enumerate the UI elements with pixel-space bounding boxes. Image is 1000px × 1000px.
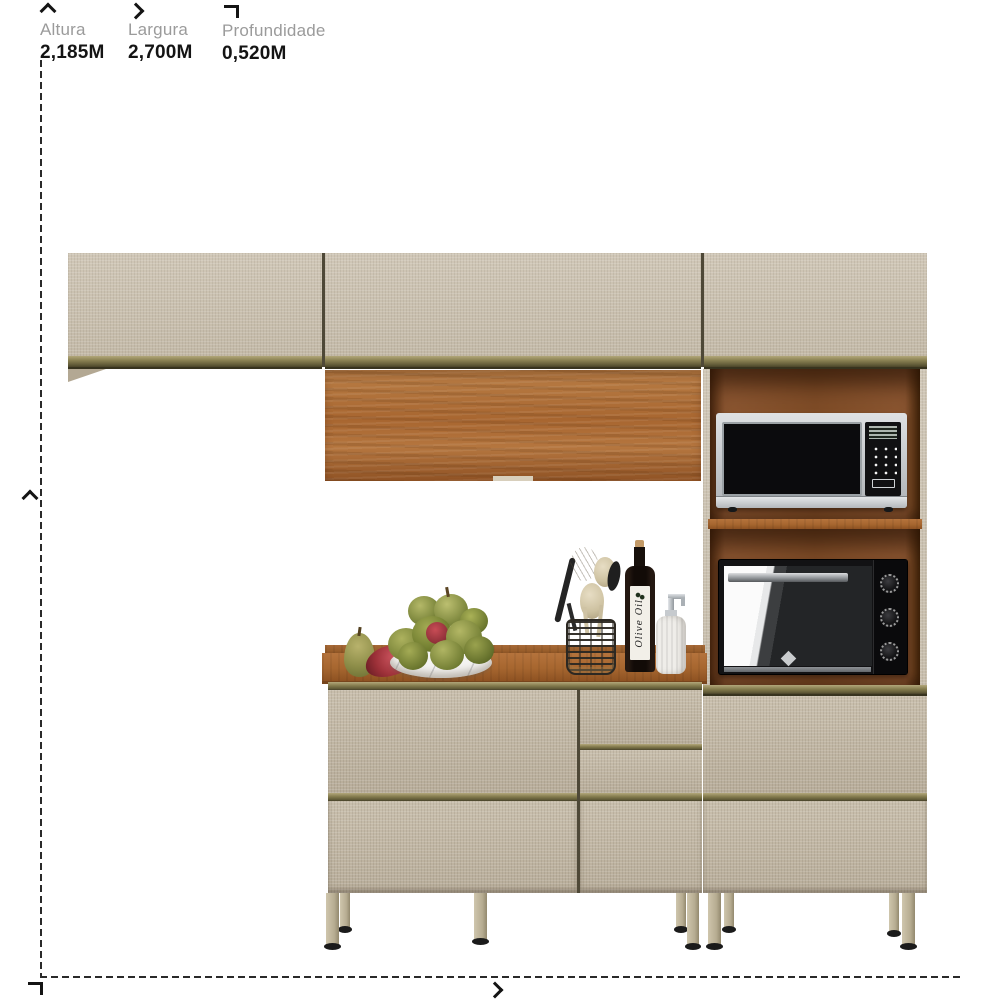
champagne-trim [325,356,701,369]
dimension-label: Largura [128,21,193,39]
microwave-niche [710,369,920,519]
champagne-trim [704,356,927,369]
niche-shelf [708,519,922,529]
microwave-foot [728,507,737,512]
leg-foot [685,943,701,950]
pear [464,636,494,664]
oven-handle [728,573,848,582]
dimension-value: 2,185M [40,42,105,64]
cabinet-leg [724,893,734,929]
microwave-display [869,426,897,439]
tall-cabinet-top-door [704,253,927,369]
cabinet-leg [474,893,487,941]
leg-foot [324,943,341,950]
wood-flip-door [325,370,701,481]
counter-left-lower-front [328,801,577,893]
pear [430,640,464,670]
bottle-label: Olive Oil [630,586,650,660]
width-arrow-icon [487,982,504,999]
cabinet-leg [340,893,350,929]
dispenser-body [656,616,686,674]
door-handle-notch [493,476,533,481]
tall-cabinet-upper-front [703,696,927,793]
depth-corner-icon [224,5,239,18]
champagne-trim [328,793,702,801]
oven-knob [880,608,899,627]
leg-foot [338,926,352,933]
utensil-set [558,545,624,675]
tall-cabinet-lower-front [703,801,927,893]
champagne-trim [328,682,702,690]
oven-knob [880,574,899,593]
height-guide-line [40,60,42,977]
cabinet-leg [889,893,899,933]
champagne-trim [703,685,927,696]
microwave-keypad [869,443,897,475]
leg-foot [706,943,723,950]
toaster-oven [718,559,908,675]
depth-corner-icon [28,982,43,995]
counter-small-drawer-top [580,690,702,744]
microwave [716,413,907,508]
chevron-up-icon [40,3,57,20]
champagne-trim [68,356,322,369]
microwave-base [716,496,907,508]
counter-small-drawer-bottom [580,750,702,793]
microwave-foot [884,507,893,512]
cabinet-leg [708,893,721,946]
leg-foot [674,926,688,933]
oven-niche [710,529,920,685]
width-guide-line [40,976,960,978]
product-image-canvas: Altura 2,185M Largura 2,700M Profundidad… [0,0,1000,1000]
cabinet-leg [687,893,699,946]
wall-cabinet-middle-door [325,253,701,369]
leg-foot [887,930,901,937]
dimension-depth: Profundidade 0,520M [222,5,326,65]
fruit-pile [386,594,496,672]
tall-cabinet-body [703,369,927,893]
dimension-width: Largura 2,700M [128,5,193,64]
height-arrow-icon [22,490,39,507]
wall-cabinet-underside [68,369,106,382]
microwave-open-button [872,479,895,488]
oven-control-panel [873,560,907,674]
microwave-door [722,422,862,496]
chevron-right-icon [128,3,145,20]
counter-left-drawer-front [328,690,577,793]
counter-cabinet-body [328,682,702,893]
pear-stem [357,627,361,636]
pear-stem [445,587,450,597]
cabinet-leg [902,893,915,946]
leg-foot [900,943,917,950]
cabinet-leg [676,893,686,929]
dimension-value: 2,700M [128,42,193,64]
dimension-value: 0,520M [222,43,326,65]
soap-dispenser [656,590,686,674]
cabinet-leg [326,893,339,946]
oven-base [724,667,871,672]
champagne-trim [703,793,927,801]
bottle-label-text: Olive Oil [636,599,645,648]
dimension-label: Altura [40,21,105,39]
wire-basket [566,619,616,675]
wall-cabinet-left-door [68,253,322,369]
microwave-control-panel [865,422,901,496]
oven-knob [880,642,899,661]
pear [398,642,428,670]
dimension-label: Profundidade [222,22,326,40]
olive-oil-bottle: Olive Oil [625,540,655,672]
counter-right-door [580,801,702,893]
dispenser-nozzle [681,598,685,606]
leg-foot [472,938,489,945]
dimension-height: Altura 2,185M [40,5,105,64]
leg-foot [722,926,736,933]
